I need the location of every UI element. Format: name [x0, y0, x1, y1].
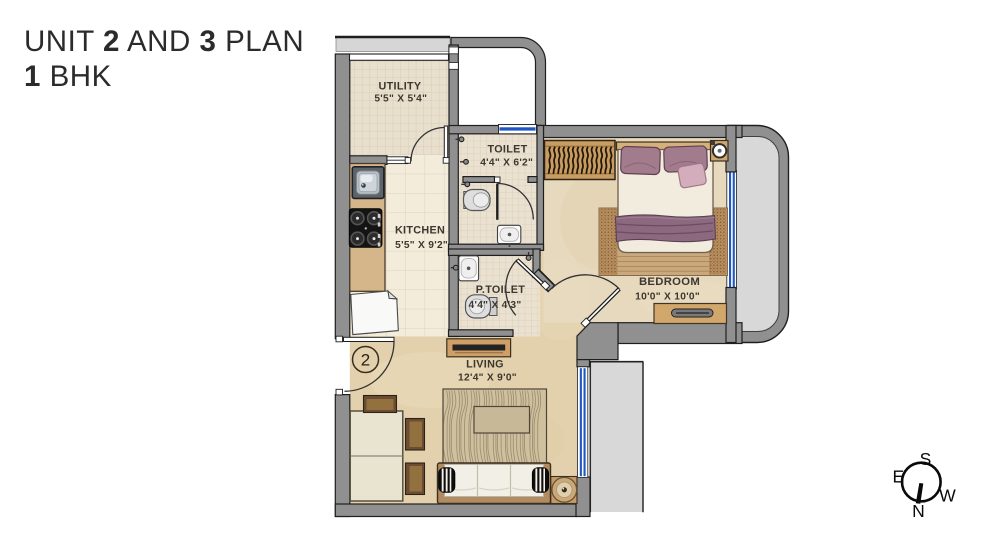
svg-text:5'5" X 5'4": 5'5" X 5'4" [374, 94, 427, 105]
svg-text:LIVING: LIVING [466, 359, 504, 371]
svg-text:S: S [920, 449, 932, 469]
svg-text:4'4" X 4'3": 4'4" X 4'3" [469, 300, 522, 311]
svg-text:10'0" X 10'0": 10'0" X 10'0" [635, 291, 700, 302]
svg-text:UTILITY: UTILITY [379, 81, 422, 93]
svg-text:E: E [893, 467, 905, 487]
svg-text:4'4" X 6'2": 4'4" X 6'2" [480, 158, 533, 169]
svg-text:2: 2 [361, 351, 370, 370]
svg-text:TOILET: TOILET [488, 144, 528, 156]
svg-text:KITCHEN: KITCHEN [395, 225, 445, 237]
svg-text:BEDROOM: BEDROOM [639, 276, 700, 288]
svg-text:P.TOILET: P.TOILET [476, 284, 526, 296]
svg-text:W: W [939, 486, 956, 506]
svg-text:12'4" X 9'0": 12'4" X 9'0" [458, 373, 517, 384]
svg-text:N: N [912, 501, 925, 521]
svg-text:UNIT 2 AND 3 PLAN: UNIT 2 AND 3 PLAN [24, 25, 304, 58]
svg-text:5'5" X 9'2": 5'5" X 9'2" [395, 240, 448, 251]
svg-text:1 BHK: 1 BHK [24, 60, 112, 93]
